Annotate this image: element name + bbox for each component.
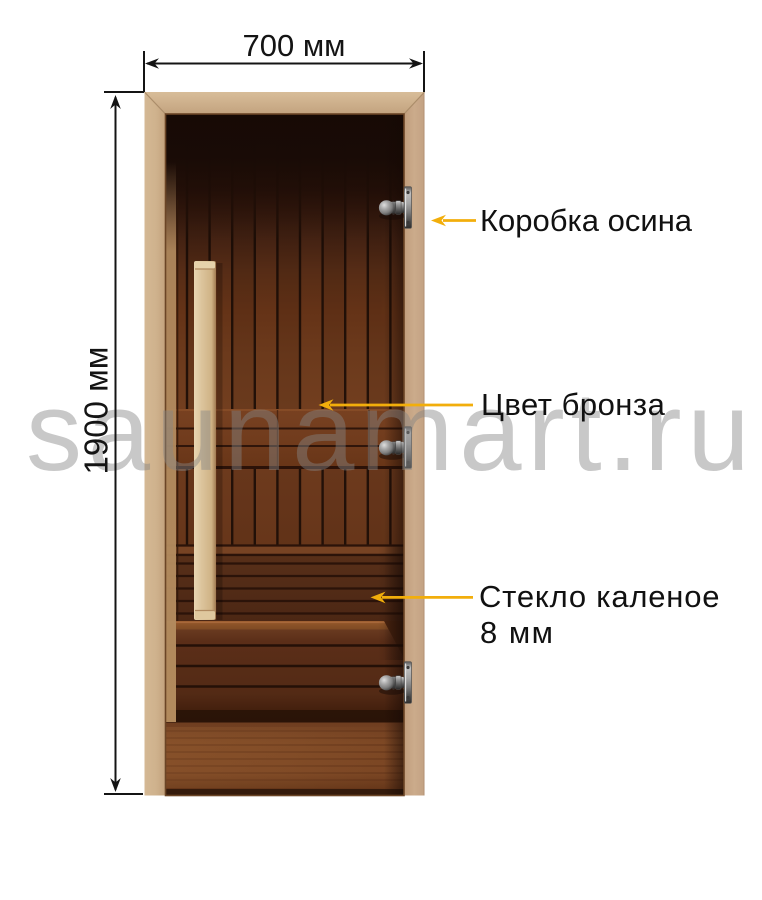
svg-text:1900 мм: 1900 мм	[78, 347, 115, 475]
svg-text:Цвет бронза: Цвет бронза	[481, 387, 666, 422]
svg-text:Коробка осина: Коробка осина	[480, 203, 693, 238]
svg-text:700 мм: 700 мм	[243, 28, 346, 63]
svg-text:Стекло каленое: Стекло каленое	[479, 579, 720, 614]
svg-text:8 мм: 8 мм	[480, 615, 554, 650]
